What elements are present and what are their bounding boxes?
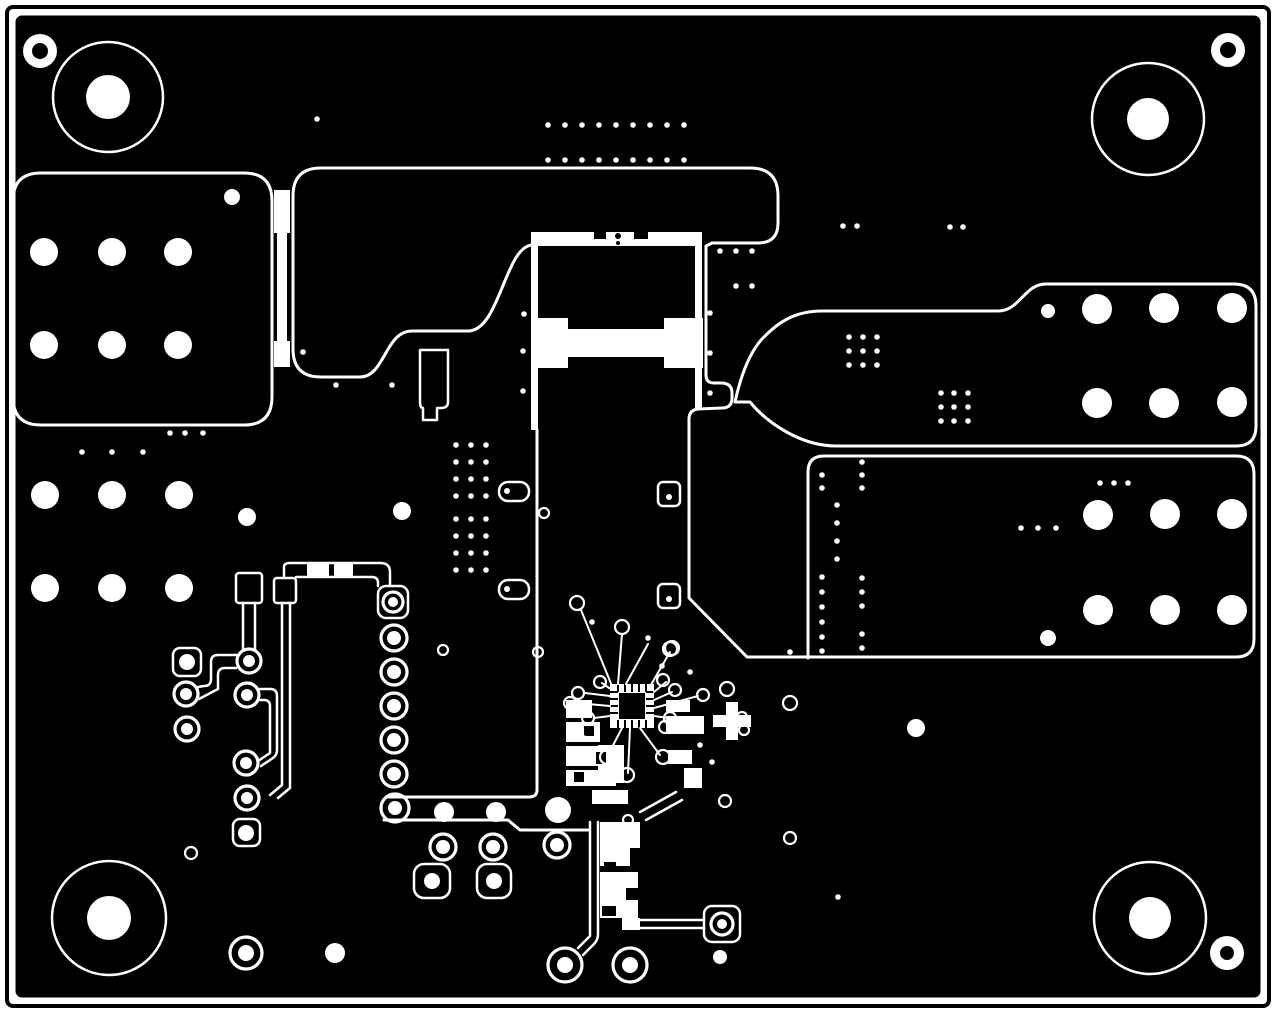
via — [468, 533, 474, 539]
cutout — [631, 720, 633, 728]
cutout — [624, 684, 626, 692]
mounting-hole-center — [86, 75, 130, 119]
via — [835, 894, 841, 900]
via — [613, 157, 619, 163]
via — [314, 116, 320, 122]
copper-fill — [668, 750, 692, 764]
via — [483, 459, 489, 465]
donut-pad-center — [387, 767, 401, 781]
cutout — [610, 691, 618, 693]
donut-pad-center — [387, 699, 401, 713]
via — [562, 157, 568, 163]
pad — [1082, 294, 1112, 324]
via — [453, 516, 459, 522]
copper-fill — [622, 918, 640, 930]
via — [468, 442, 474, 448]
via — [140, 449, 146, 455]
copper-fill — [684, 768, 702, 788]
via — [453, 550, 459, 556]
pad — [238, 508, 256, 526]
via — [834, 520, 840, 526]
via — [468, 567, 474, 573]
via — [581, 735, 587, 741]
via — [733, 248, 739, 254]
pad — [31, 574, 59, 602]
via — [874, 362, 880, 368]
via — [938, 404, 944, 410]
via — [859, 645, 865, 651]
via — [545, 157, 551, 163]
via — [453, 567, 459, 573]
via — [483, 476, 489, 482]
pad — [164, 331, 192, 359]
donut-pad-center — [387, 733, 401, 747]
cutout — [568, 357, 664, 369]
via — [681, 122, 687, 128]
outlined-pad-dot — [179, 654, 195, 670]
cutout — [645, 684, 647, 692]
via — [520, 348, 526, 354]
cutout — [610, 705, 618, 707]
copper-fill — [307, 562, 329, 577]
via — [687, 669, 693, 675]
via — [483, 493, 489, 499]
via — [483, 516, 489, 522]
via — [579, 122, 585, 128]
pad — [1150, 499, 1180, 529]
cutout — [626, 888, 638, 900]
donut-pad-center — [387, 631, 401, 645]
donut-pad-center — [388, 597, 398, 607]
outlined-pad-dot — [666, 596, 672, 602]
via — [483, 550, 489, 556]
via — [787, 649, 793, 655]
pad — [1149, 293, 1179, 323]
outlined-pad-dot — [666, 494, 672, 500]
pad — [1040, 630, 1056, 646]
donut-pad-center — [436, 840, 450, 854]
via — [819, 485, 825, 491]
via — [79, 449, 85, 455]
via — [300, 349, 306, 355]
donut-pad-center — [486, 840, 500, 854]
via — [664, 157, 670, 163]
pad — [30, 238, 58, 266]
pad — [1082, 388, 1112, 418]
pad — [98, 481, 126, 509]
via — [707, 310, 713, 316]
via — [938, 390, 944, 396]
via — [200, 430, 206, 436]
donut-pad-center — [240, 757, 252, 769]
donut-pad-center — [238, 945, 254, 961]
pad — [1217, 293, 1247, 323]
via — [951, 418, 957, 424]
donut-pad-center — [557, 957, 573, 973]
via — [630, 122, 636, 128]
cutout — [617, 720, 619, 728]
pad — [1217, 387, 1247, 417]
via — [1018, 525, 1024, 531]
via — [1053, 525, 1059, 531]
via — [453, 493, 459, 499]
via — [1111, 480, 1117, 486]
via — [681, 157, 687, 163]
donut-pad-center — [181, 723, 193, 735]
via — [819, 604, 825, 610]
corner-ring-hole — [1220, 42, 1236, 58]
via — [819, 648, 825, 654]
via — [819, 574, 825, 580]
via — [545, 122, 551, 128]
pad — [165, 574, 193, 602]
via — [947, 224, 953, 230]
via — [840, 223, 846, 229]
via — [819, 472, 825, 478]
cutout — [610, 712, 618, 714]
via — [819, 589, 825, 595]
cutout — [568, 318, 664, 329]
copper-fill — [274, 341, 290, 367]
pad — [1217, 595, 1247, 625]
pad — [98, 574, 126, 602]
cutout — [646, 698, 654, 700]
via — [834, 502, 840, 508]
pcb-screenshot — [0, 0, 1276, 1013]
via — [1125, 480, 1131, 486]
donut-pad-center — [717, 919, 727, 929]
pad — [165, 481, 193, 509]
via — [717, 248, 723, 254]
via — [965, 404, 971, 410]
copper-fill — [334, 562, 353, 577]
via — [389, 382, 395, 388]
via — [707, 350, 713, 356]
via — [664, 122, 670, 128]
via — [645, 635, 651, 641]
corner-ring-hole — [32, 43, 48, 59]
via — [707, 390, 713, 396]
via — [468, 476, 474, 482]
mounting-hole-center — [87, 896, 131, 940]
pad — [98, 331, 126, 359]
mounting-hole-center — [1129, 897, 1171, 939]
via — [453, 442, 459, 448]
via — [659, 663, 665, 669]
cutout — [638, 684, 640, 692]
copper-fill — [277, 233, 287, 341]
cutout — [631, 684, 633, 692]
via — [647, 122, 653, 128]
via — [859, 485, 865, 491]
pad — [1149, 388, 1179, 418]
via — [468, 550, 474, 556]
via — [859, 575, 865, 581]
mounting-hole-center — [1127, 98, 1169, 140]
via — [630, 157, 636, 163]
outlined-pad-dot — [486, 873, 502, 889]
via — [859, 631, 865, 637]
via — [333, 382, 339, 388]
via — [709, 759, 715, 765]
copper-fill — [274, 190, 290, 233]
cutout-dot — [616, 241, 620, 245]
pad — [907, 719, 925, 737]
cutout — [646, 691, 654, 693]
cutout — [584, 726, 594, 736]
pad — [30, 331, 58, 359]
outlined-pad-dot — [238, 825, 254, 841]
donut-pad-center — [180, 688, 192, 700]
via — [468, 516, 474, 522]
via — [483, 567, 489, 573]
pad — [1217, 499, 1247, 529]
via — [733, 283, 739, 289]
cutout — [624, 720, 626, 728]
cutout — [638, 720, 640, 728]
via — [846, 334, 852, 340]
pad — [1150, 595, 1180, 625]
via — [859, 589, 865, 595]
via — [749, 283, 755, 289]
via — [874, 348, 880, 354]
via — [1097, 480, 1103, 486]
pad — [393, 502, 411, 520]
via — [938, 418, 944, 424]
via — [965, 390, 971, 396]
pad — [1083, 500, 1113, 530]
cutout — [594, 232, 606, 239]
donut-pad-center — [622, 957, 638, 973]
via — [819, 619, 825, 625]
via — [182, 430, 188, 436]
pad — [434, 802, 454, 822]
via — [468, 493, 474, 499]
pad — [1041, 304, 1055, 318]
pcb-board-image — [0, 0, 1276, 1013]
via — [1035, 525, 1041, 531]
via — [109, 449, 115, 455]
via — [846, 348, 852, 354]
donut-pad-center — [388, 801, 402, 815]
via — [453, 533, 459, 539]
outlined-pad-dot — [504, 488, 510, 494]
outlined-pad-dot — [504, 586, 510, 592]
via — [874, 334, 880, 340]
pad — [164, 238, 192, 266]
cutout — [617, 684, 619, 692]
donut-pad-center — [241, 792, 253, 804]
via — [562, 122, 568, 128]
cutout — [646, 705, 654, 707]
via — [483, 533, 489, 539]
outlined-pad-dot — [424, 873, 440, 889]
cutout — [630, 848, 640, 866]
cutout — [602, 906, 616, 916]
via — [860, 348, 866, 354]
donut-pad-center — [241, 689, 253, 701]
via — [697, 742, 703, 748]
via — [483, 442, 489, 448]
via — [859, 459, 865, 465]
copper-fill — [533, 232, 695, 246]
via — [520, 388, 526, 394]
pad — [545, 797, 571, 823]
via — [647, 157, 653, 163]
cutout — [634, 232, 648, 239]
pad — [325, 943, 345, 963]
via — [468, 459, 474, 465]
donut-pad-center — [387, 665, 401, 679]
cutout — [604, 862, 616, 872]
cutout — [645, 720, 647, 728]
via — [613, 122, 619, 128]
via — [859, 472, 865, 478]
via — [834, 538, 840, 544]
via — [596, 122, 602, 128]
via — [951, 404, 957, 410]
via — [860, 362, 866, 368]
via — [960, 224, 966, 230]
pad — [1083, 595, 1113, 625]
via — [453, 459, 459, 465]
via — [819, 634, 825, 640]
cutout — [610, 698, 618, 700]
copper-fill — [592, 790, 628, 804]
via — [521, 311, 527, 317]
cutout — [574, 772, 584, 782]
donut-pad-center — [243, 655, 255, 667]
pad — [98, 238, 126, 266]
via — [453, 476, 459, 482]
via — [596, 157, 602, 163]
cutout — [646, 712, 654, 714]
pad — [713, 950, 727, 964]
via — [167, 430, 173, 436]
pad — [31, 481, 59, 509]
cutout — [619, 693, 645, 719]
via — [859, 603, 865, 609]
donut-pad-center — [550, 838, 564, 852]
via — [749, 248, 755, 254]
via — [846, 362, 852, 368]
via — [854, 223, 860, 229]
cutout-dot — [615, 233, 621, 239]
via — [965, 418, 971, 424]
via — [951, 390, 957, 396]
pad — [224, 189, 240, 205]
pad — [486, 802, 506, 822]
via — [834, 556, 840, 562]
via — [860, 334, 866, 340]
via — [579, 157, 585, 163]
via — [589, 619, 595, 625]
corner-ring-hole — [1220, 946, 1234, 960]
